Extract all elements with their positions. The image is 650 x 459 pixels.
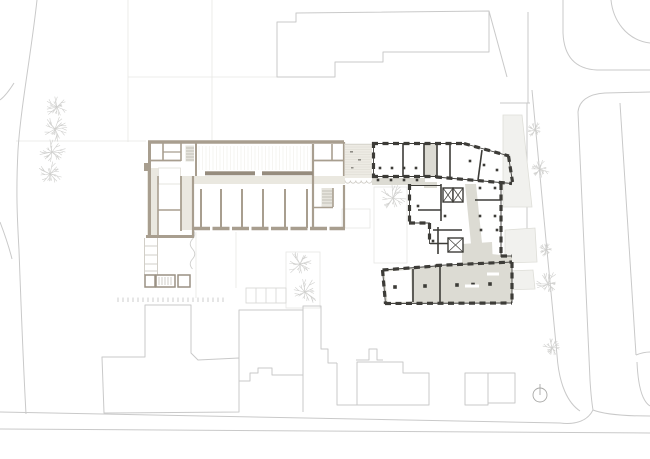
roads (0, 0, 650, 433)
tree (381, 185, 406, 208)
room-partitions (201, 189, 307, 228)
tree (45, 117, 68, 142)
tree (289, 252, 311, 273)
tree (528, 123, 540, 137)
elevator-shafts (443, 188, 463, 252)
new-building (144, 142, 345, 238)
right-road-east-curb (620, 103, 636, 355)
neighbour-south-d (357, 362, 429, 405)
hall-floor (199, 146, 311, 170)
neighbour-south-b (239, 310, 303, 381)
north-wing-stair-zone (424, 144, 437, 177)
tree (47, 97, 67, 116)
courtyard (118, 229, 286, 303)
tree (39, 162, 62, 183)
existing-building (372, 142, 513, 304)
patio (159, 168, 181, 184)
entrance-paving-outline (342, 209, 370, 228)
tree (294, 279, 316, 303)
neighbour-north (277, 11, 489, 77)
trees (39, 97, 560, 355)
hall-south-wall (205, 171, 255, 175)
left-road-edge (17, 0, 37, 414)
parking-ticks (118, 298, 223, 303)
neighbour-south-a (102, 305, 239, 413)
bottom-road-edge (0, 410, 593, 423)
right-road-west-curb (578, 112, 593, 410)
top-right-road-edge (563, 0, 650, 70)
tree (532, 160, 550, 178)
garden-sheds (145, 275, 190, 287)
north-arrow-icon (533, 384, 547, 402)
tree (540, 243, 552, 256)
tree (40, 139, 66, 161)
site-plan-drawing (0, 0, 650, 459)
parking-stalls (246, 288, 286, 303)
terrace (344, 144, 372, 183)
neighbour-south-e (465, 373, 488, 405)
tree (536, 272, 556, 292)
neighbour-south-c (303, 306, 337, 412)
walkway (145, 246, 158, 271)
mid-corridor (465, 184, 482, 244)
planting-scallops (345, 181, 372, 184)
neighbour-south-f (488, 373, 515, 403)
neighbour-buildings (102, 11, 530, 413)
